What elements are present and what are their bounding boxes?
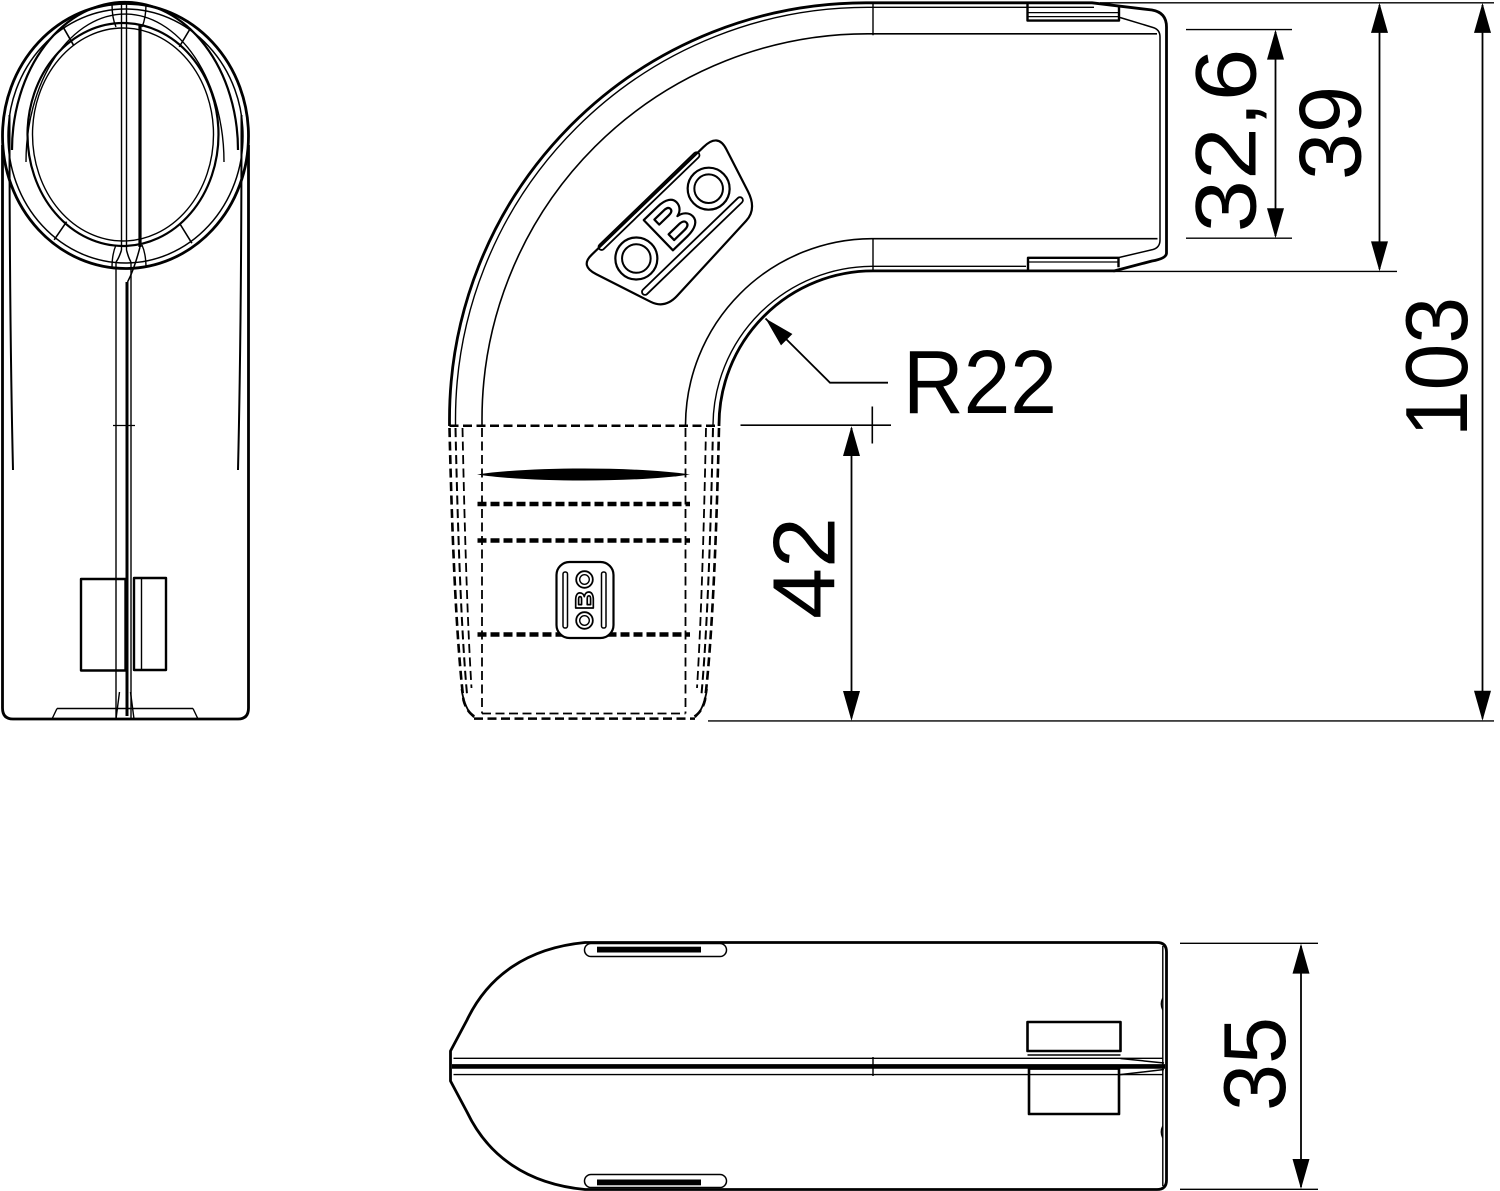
svg-text:32,6: 32,6: [1179, 49, 1275, 233]
svg-text:39: 39: [1281, 86, 1380, 180]
svg-text:42: 42: [755, 517, 854, 619]
svg-text:103: 103: [1387, 297, 1486, 437]
svg-text:35: 35: [1205, 1017, 1304, 1111]
svg-text:R22: R22: [903, 333, 1057, 433]
